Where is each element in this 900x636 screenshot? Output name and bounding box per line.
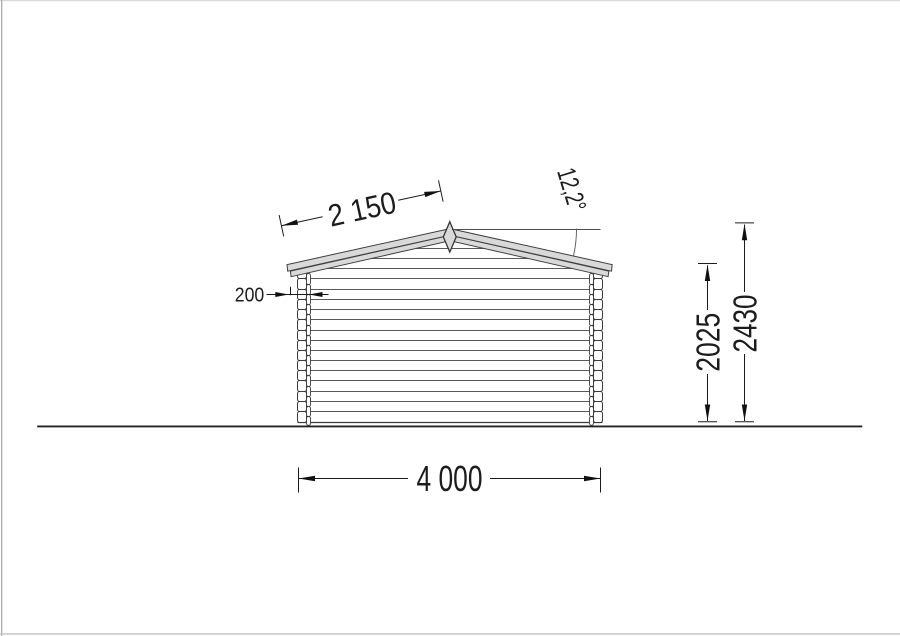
svg-text:2025: 2025 xyxy=(690,313,727,372)
svg-text:4 000: 4 000 xyxy=(417,458,483,499)
svg-text:200: 200 xyxy=(235,285,265,307)
svg-text:2430: 2430 xyxy=(727,295,764,353)
